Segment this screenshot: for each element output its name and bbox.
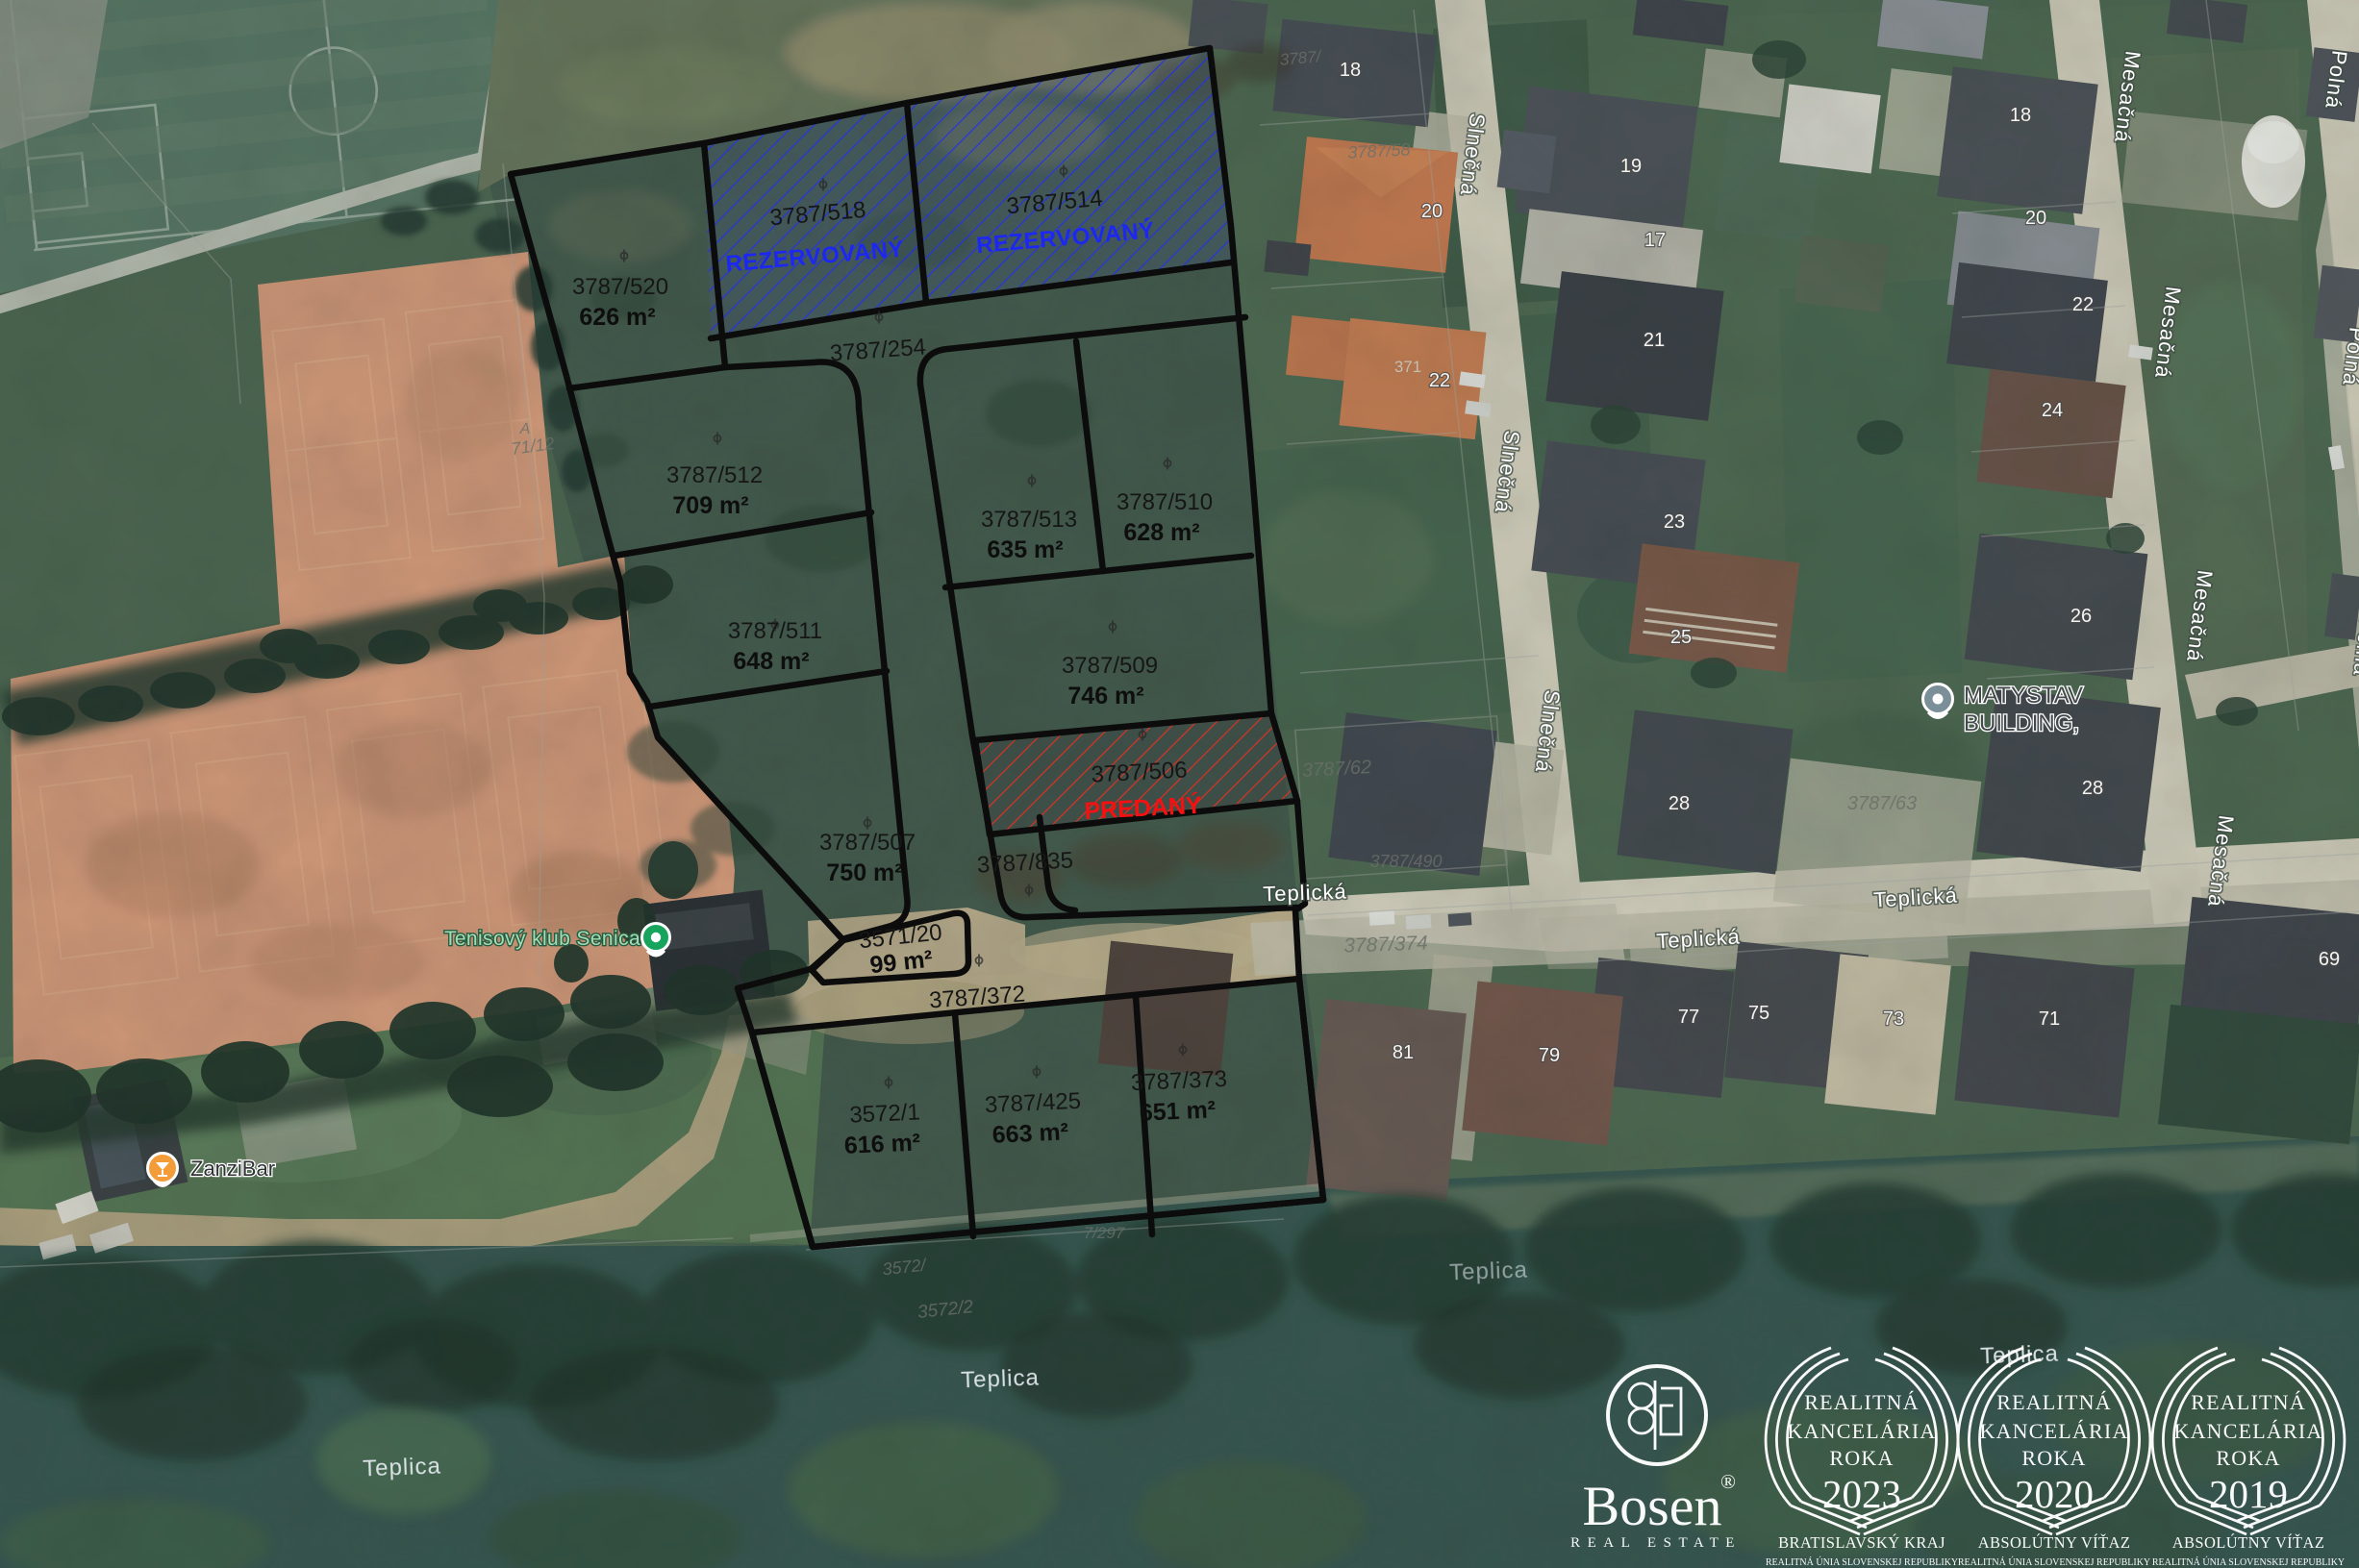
svg-text:3787/58: 3787/58 xyxy=(1347,139,1411,162)
svg-text:MATYSTAV: MATYSTAV xyxy=(1964,683,2083,709)
svg-text:626 m²: 626 m² xyxy=(579,304,655,331)
svg-text:3572/1: 3572/1 xyxy=(849,1099,921,1128)
svg-text:77: 77 xyxy=(1678,1007,1699,1028)
svg-text:19: 19 xyxy=(1620,156,1642,177)
svg-text:BRATISLAVSKÝ KRAJ: BRATISLAVSKÝ KRAJ xyxy=(1778,1533,1945,1552)
svg-text:648 m²: 648 m² xyxy=(733,648,809,675)
svg-text:25: 25 xyxy=(1670,627,1692,648)
svg-text:746 m²: 746 m² xyxy=(1067,683,1143,709)
svg-text:®: ® xyxy=(1720,1470,1736,1493)
svg-text:2023: 2023 xyxy=(1822,1472,1901,1516)
svg-text:3787/510: 3787/510 xyxy=(1117,489,1213,515)
svg-text:REALITNÁ ÚNIA SLOVENSKEJ REPUB: REALITNÁ ÚNIA SLOVENSKEJ REPUBLIKY xyxy=(2152,1556,2345,1568)
svg-text:Teplická: Teplická xyxy=(1263,879,1347,906)
svg-text:KANCELÁRIA: KANCELÁRIA xyxy=(1788,1419,1937,1443)
svg-text:750 m²: 750 m² xyxy=(826,859,902,886)
svg-text:3787/373: 3787/373 xyxy=(1130,1066,1227,1096)
svg-text:616 m²: 616 m² xyxy=(843,1129,920,1158)
svg-text:Bosen: Bosen xyxy=(1583,1475,1722,1537)
svg-text:Teplická: Teplická xyxy=(1656,924,1742,953)
svg-text:REALITNÁ ÚNIA SLOVENSKEJ REPUB: REALITNÁ ÚNIA SLOVENSKEJ REPUBLIKY xyxy=(1958,1556,2150,1568)
svg-text:628 m²: 628 m² xyxy=(1123,519,1199,546)
svg-text:Teplica: Teplica xyxy=(1449,1257,1529,1286)
svg-text:28: 28 xyxy=(2082,778,2103,799)
svg-text:BUILDING,: BUILDING, xyxy=(1964,710,2079,736)
svg-text:ROKA: ROKA xyxy=(2021,1446,2086,1470)
svg-text:18: 18 xyxy=(2010,105,2031,126)
svg-text:ABSOLÚTNY VÍŤAZ: ABSOLÚTNY VÍŤAZ xyxy=(1978,1533,2131,1552)
svg-text:709 m²: 709 m² xyxy=(672,492,748,519)
svg-text:20: 20 xyxy=(1421,201,1443,222)
svg-text:REALITNÁ: REALITNÁ xyxy=(1996,1390,2112,1414)
svg-text:3787/506: 3787/506 xyxy=(1091,757,1188,787)
svg-text:71: 71 xyxy=(2039,1008,2060,1030)
svg-text:ROKA: ROKA xyxy=(2216,1446,2280,1470)
svg-text:3787/490: 3787/490 xyxy=(1369,852,1442,871)
svg-text:28: 28 xyxy=(1669,793,1690,814)
svg-text:A: A xyxy=(519,421,531,437)
svg-text:REAL ESTATE: REAL ESTATE xyxy=(1570,1535,1742,1551)
svg-text:7/297: 7/297 xyxy=(1084,1224,1125,1242)
svg-text:3787/63: 3787/63 xyxy=(1847,793,1917,814)
svg-text:3787/513: 3787/513 xyxy=(981,507,1077,533)
svg-text:KANCELÁRIA: KANCELÁRIA xyxy=(2174,1419,2323,1443)
svg-text:81: 81 xyxy=(1393,1042,1414,1063)
svg-text:3787/62: 3787/62 xyxy=(1301,757,1371,782)
svg-text:73: 73 xyxy=(1883,1008,1904,1030)
svg-text:22: 22 xyxy=(2072,294,2094,315)
svg-text:3787/374: 3787/374 xyxy=(1343,932,1428,957)
svg-text:23: 23 xyxy=(1664,511,1685,533)
svg-text:ABSOLÚTNY VÍŤAZ: ABSOLÚTNY VÍŤAZ xyxy=(2172,1533,2325,1552)
svg-text:KANCELÁRIA: KANCELÁRIA xyxy=(1980,1419,2129,1443)
svg-text:2020: 2020 xyxy=(2015,1472,2094,1516)
svg-text:2019: 2019 xyxy=(2209,1472,2288,1516)
svg-text:3787/835: 3787/835 xyxy=(976,847,1073,878)
svg-text:663 m²: 663 m² xyxy=(991,1118,1068,1148)
svg-text:18: 18 xyxy=(1340,60,1361,81)
svg-text:17: 17 xyxy=(1644,230,1666,251)
svg-text:21: 21 xyxy=(1644,330,1665,351)
svg-text:3787/512: 3787/512 xyxy=(666,462,763,488)
svg-text:69: 69 xyxy=(2319,949,2340,970)
svg-text:REALITNÁ: REALITNÁ xyxy=(1804,1390,1920,1414)
svg-text:3787/507: 3787/507 xyxy=(819,830,916,856)
svg-text:3787/520: 3787/520 xyxy=(572,274,668,300)
svg-text:20: 20 xyxy=(2025,208,2046,229)
svg-text:ROKA: ROKA xyxy=(1829,1446,1894,1470)
svg-text:3787/509: 3787/509 xyxy=(1062,653,1158,679)
svg-text:REALITNÁ ÚNIA SLOVENSKEJ REPUB: REALITNÁ ÚNIA SLOVENSKEJ REPUBLIKY xyxy=(1766,1556,1958,1568)
svg-text:ZanziBar: ZanziBar xyxy=(190,1157,275,1181)
svg-text:Tenisový klub Senica: Tenisový klub Senica xyxy=(444,928,640,950)
svg-text:635 m²: 635 m² xyxy=(987,536,1063,563)
svg-text:REALITNÁ: REALITNÁ xyxy=(2191,1390,2306,1414)
svg-text:371: 371 xyxy=(1394,358,1421,376)
svg-text:651 m²: 651 m² xyxy=(1139,1096,1216,1126)
svg-text:3787/511: 3787/511 xyxy=(728,618,822,644)
svg-text:26: 26 xyxy=(2070,606,2092,627)
svg-text:22: 22 xyxy=(1429,370,1450,391)
svg-text:3787/425: 3787/425 xyxy=(984,1088,1081,1118)
svg-text:Teplica: Teplica xyxy=(961,1365,1041,1394)
svg-text:Teplická: Teplická xyxy=(1873,883,1959,911)
svg-text:3787/: 3787/ xyxy=(1279,47,1323,69)
svg-text:24: 24 xyxy=(2042,400,2063,421)
svg-text:75: 75 xyxy=(1748,1003,1769,1024)
svg-text:Teplica: Teplica xyxy=(363,1454,442,1482)
svg-text:79: 79 xyxy=(1539,1045,1560,1066)
